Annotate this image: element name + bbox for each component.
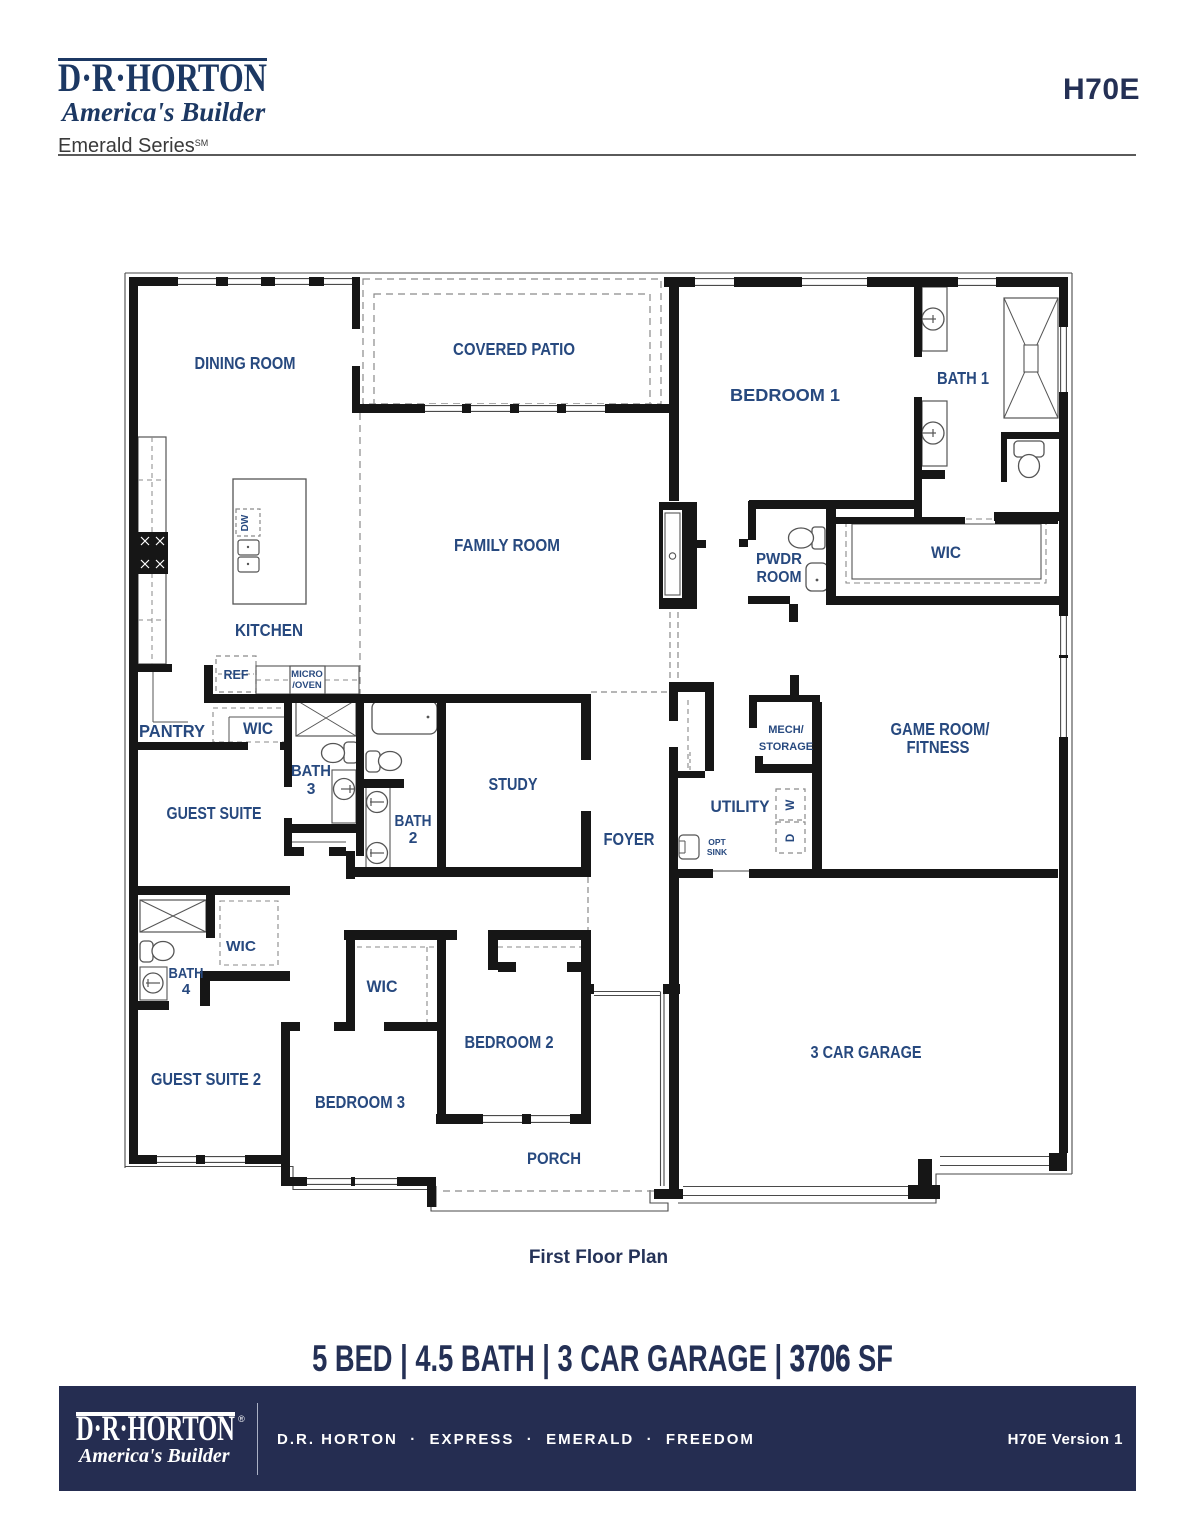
svg-text:BEDROOM 1: BEDROOM 1: [730, 385, 840, 405]
svg-text:UTILITY: UTILITY: [711, 798, 770, 816]
svg-text:BEDROOM 2: BEDROOM 2: [465, 1032, 554, 1052]
svg-text:REF: REF: [224, 668, 249, 682]
svg-text:WIC: WIC: [931, 544, 961, 562]
svg-text:D: D: [785, 834, 797, 842]
svg-text:KITCHEN: KITCHEN: [235, 620, 303, 640]
svg-text:COVERED PATIO: COVERED PATIO: [453, 339, 575, 359]
svg-text:WIC: WIC: [243, 720, 273, 738]
svg-text:SINK: SINK: [707, 847, 728, 857]
svg-text:PANTRY: PANTRY: [139, 721, 205, 741]
svg-text:GUEST SUITE 2: GUEST SUITE 2: [151, 1069, 261, 1089]
svg-text:ROOM: ROOM: [757, 569, 802, 586]
svg-text:3 CAR GARAGE: 3 CAR GARAGE: [811, 1042, 922, 1062]
svg-text:PWDR: PWDR: [756, 551, 802, 568]
svg-text:GUEST SUITE: GUEST SUITE: [167, 803, 262, 823]
svg-text:MECH/: MECH/: [768, 724, 803, 736]
svg-text:STUDY: STUDY: [489, 774, 538, 794]
svg-text:4: 4: [182, 981, 191, 998]
svg-text:MICRO: MICRO: [291, 669, 323, 680]
svg-text:FAMILY ROOM: FAMILY ROOM: [454, 535, 560, 555]
svg-text:W: W: [785, 799, 797, 810]
svg-text:GAME ROOM/: GAME ROOM/: [891, 719, 990, 739]
svg-text:3: 3: [307, 781, 316, 798]
svg-text:BATH: BATH: [169, 965, 204, 982]
svg-text:STORAGE: STORAGE: [759, 741, 813, 753]
svg-text:/OVEN: /OVEN: [292, 680, 322, 691]
svg-text:DW: DW: [240, 514, 251, 531]
svg-text:WIC: WIC: [367, 978, 398, 996]
svg-text:DINING ROOM: DINING ROOM: [195, 353, 296, 373]
svg-text:BEDROOM 3: BEDROOM 3: [315, 1092, 405, 1112]
svg-text:FITNESS: FITNESS: [907, 737, 970, 757]
svg-text:2: 2: [409, 830, 418, 847]
svg-text:PORCH: PORCH: [527, 1150, 581, 1168]
svg-text:FOYER: FOYER: [604, 829, 655, 849]
svg-text:OPT: OPT: [708, 837, 726, 847]
svg-text:BATH 1: BATH 1: [937, 368, 989, 388]
svg-text:WIC: WIC: [226, 938, 256, 955]
svg-text:BATH: BATH: [395, 813, 432, 830]
svg-text:BATH: BATH: [291, 763, 331, 780]
